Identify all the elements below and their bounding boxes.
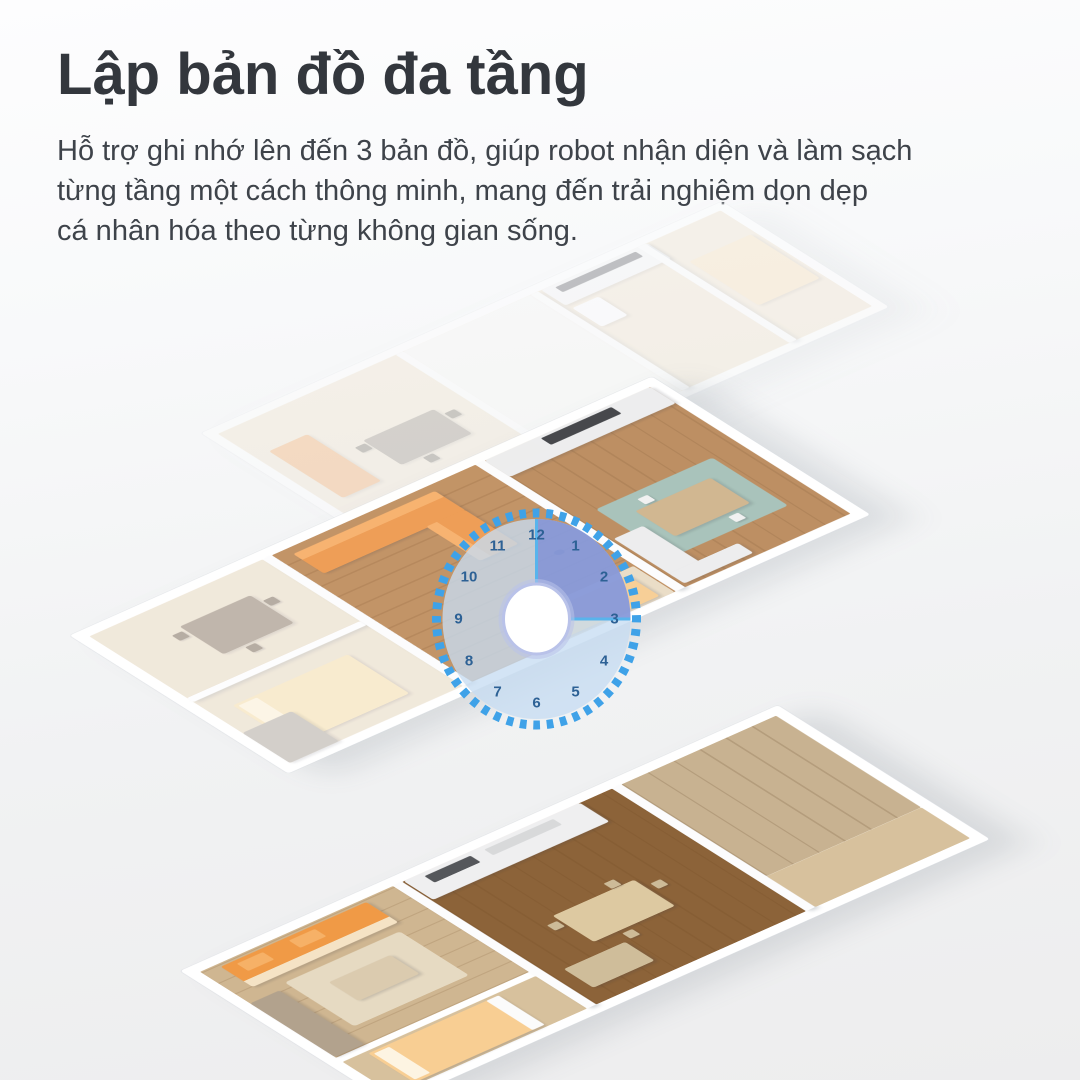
clock-number-11: 11 xyxy=(490,538,506,555)
clock-number-12: 12 xyxy=(528,527,545,544)
clock-number-3: 3 xyxy=(610,611,618,628)
clock-dial: 12 1 2 3 4 5 6 7 8 9 10 11 xyxy=(430,507,643,731)
clock-number-10: 10 xyxy=(461,569,478,586)
clock-number-8: 8 xyxy=(465,653,473,670)
clock-number-1: 1 xyxy=(571,538,579,555)
clock-number-9: 9 xyxy=(454,611,462,628)
promo-page: Lập bản đồ đa tầng Hỗ trợ ghi nhớ lên đế… xyxy=(0,0,1080,1080)
clock-number-7: 7 xyxy=(493,684,501,701)
clock-number-6: 6 xyxy=(532,695,540,712)
clock-center xyxy=(504,584,570,654)
page-title: Lập bản đồ đa tầng xyxy=(57,42,589,108)
page-description: Hỗ trợ ghi nhớ lên đến 3 bản đồ, giúp ro… xyxy=(57,131,912,251)
clock-number-2: 2 xyxy=(600,569,608,586)
description-line-2: từng tầng một cách thông minh, mang đến … xyxy=(57,171,912,211)
clock-number-4: 4 xyxy=(600,653,609,670)
clock-number-5: 5 xyxy=(571,684,579,701)
floor-slab-lower xyxy=(180,705,990,1080)
description-line-1: Hỗ trợ ghi nhớ lên đến 3 bản đồ, giúp ro… xyxy=(57,131,912,171)
floor-map-lower xyxy=(195,740,975,1070)
